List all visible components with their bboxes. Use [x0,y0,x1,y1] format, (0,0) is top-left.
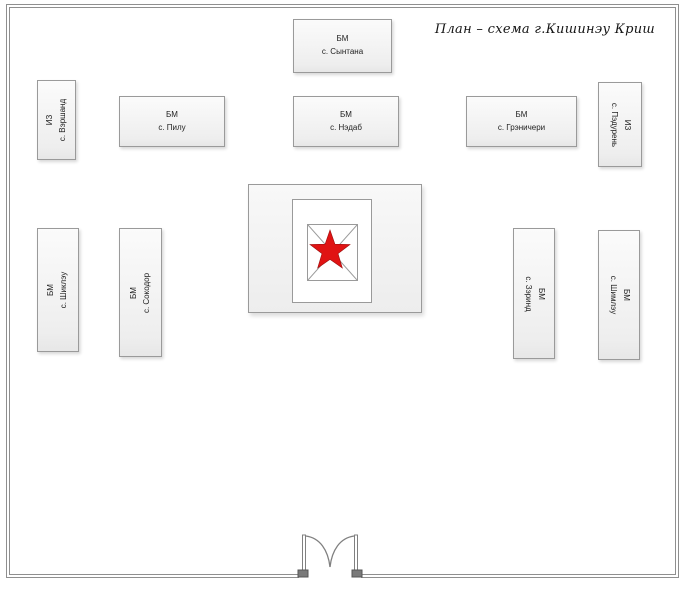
village-label: с. Сынтана [322,46,363,59]
unit-type-label: БМ [158,109,185,122]
village-label: с. Шиклэу [58,272,71,309]
unit-box-pilu: БМ с. Пилу [119,96,225,147]
unit-box-graniceri: БМ с. Грэничери [466,96,577,147]
unit-box-padureni: ИЗ с. Пэдурень [598,82,642,167]
unit-box-varsand: ИЗ с. Вэршанд [37,80,76,160]
village-label: с. Зэринд [521,276,534,311]
unit-box-zerind: БМ с. Зэринд [513,228,555,359]
unit-box-padureni-label: ИЗ с. Пэдурень [607,102,633,146]
village-label: с. Вэршанд [57,99,70,141]
village-label: с. Нэдаб [330,122,362,135]
entrance-door-icon [288,528,372,584]
red-star-icon [308,228,352,274]
unit-box-varsand-label: ИЗ с. Вэршанд [44,99,70,141]
unit-box-siclau: БМ с. Шиклэу [37,228,79,352]
unit-box-zerind-label: БМ с. Зэринд [521,276,547,311]
unit-type-label: ИЗ [44,99,57,141]
unit-type-label: БМ [330,109,362,122]
unit-box-graniceri-label: БМ с. Грэничери [498,109,545,135]
village-label: с. Грэничери [498,122,545,135]
unit-type-label: БМ [619,276,632,315]
unit-type-label: БМ [45,272,58,309]
unit-box-siclau-label: БМ с. Шиклэу [45,272,71,309]
unit-box-nadab-label: БМ с. Нэдаб [330,109,362,135]
village-label: с. Шимлэу [606,276,619,315]
unit-box-socodor: БМ с. Сокодор [119,228,162,357]
unit-box-pilu-label: БМ с. Пилу [158,109,185,135]
unit-box-socodor-label: БМ с. Сокодор [128,272,154,312]
unit-box-santana: БМ с. Сынтана [293,19,392,73]
village-label: с. Пилу [158,122,185,135]
unit-type-label: БМ [534,276,547,311]
unit-box-simlau: БМ с. Шимлэу [598,230,640,360]
unit-box-santana-label: БМ с. Сынтана [322,33,363,59]
unit-type-label: БМ [128,272,141,312]
unit-type-label: БМ [498,109,545,122]
unit-type-label: ИЗ [620,102,633,146]
plan-title: План – схема г.Кишинэу Криш [435,22,655,37]
village-label: с. Сокодор [141,272,154,312]
unit-box-simlau-label: БМ с. Шимлэу [606,276,632,315]
village-label: с. Пэдурень [607,102,620,146]
unit-type-label: БМ [322,33,363,46]
plan-canvas: План – схема г.Кишинэу Криш БМ с. Сынтан… [0,0,687,589]
unit-box-nadab: БМ с. Нэдаб [293,96,399,147]
